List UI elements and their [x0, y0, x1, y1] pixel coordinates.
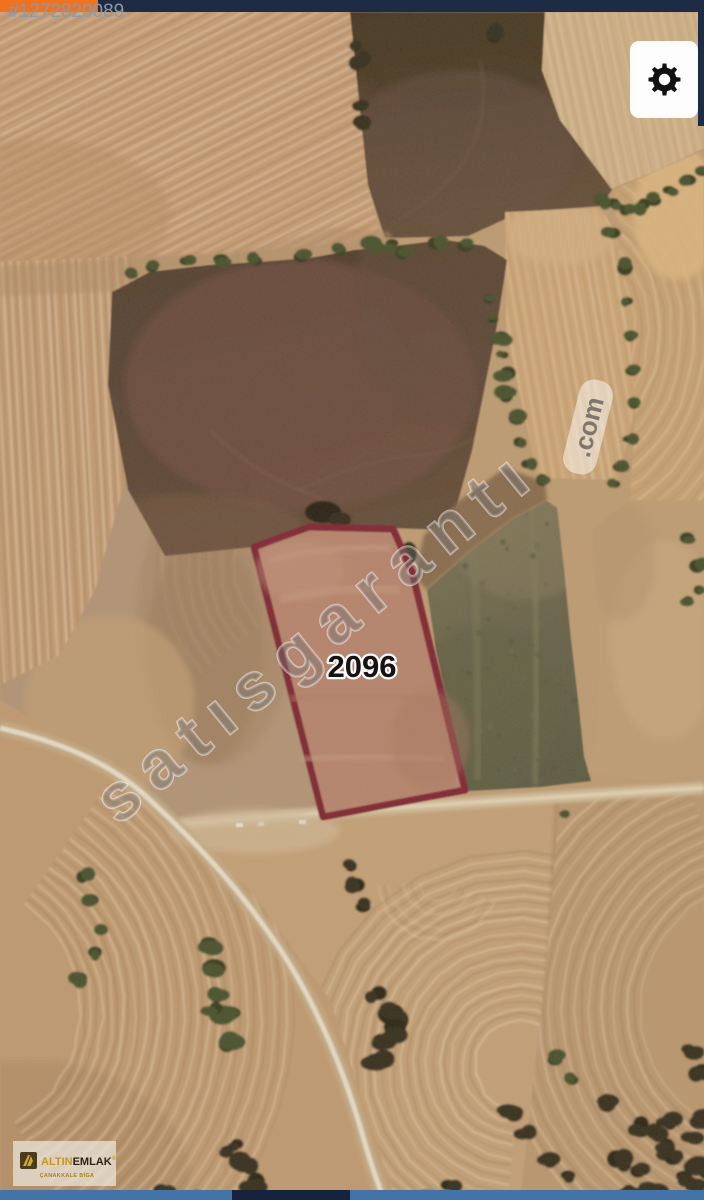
- svg-text:ÇANAKKALE BİGA: ÇANAKKALE BİGA: [40, 1172, 95, 1179]
- svg-text:ALTINEMLAK®: ALTINEMLAK®: [41, 1155, 117, 1168]
- svg-text:#1272820089: #1272820089: [8, 1, 124, 22]
